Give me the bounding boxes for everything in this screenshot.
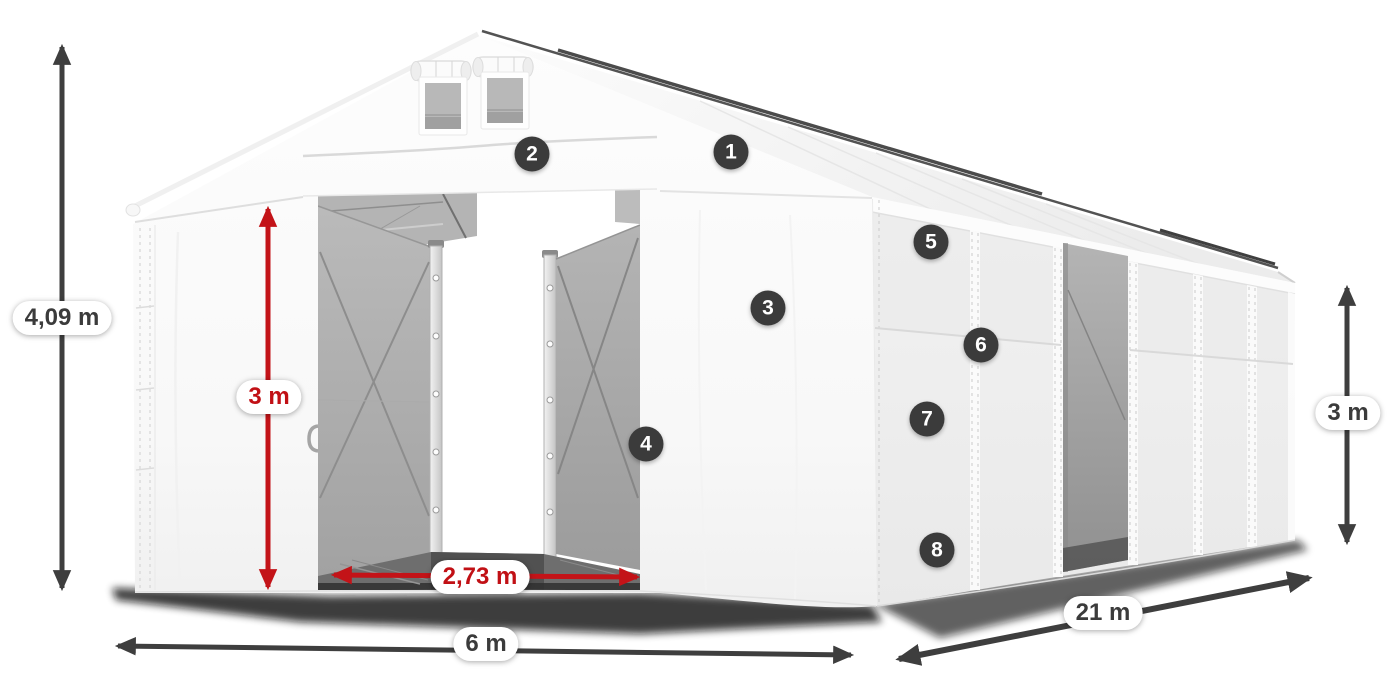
vent-window-right xyxy=(473,57,533,129)
tent-illustration xyxy=(0,0,1400,700)
door-pole-left xyxy=(428,240,444,566)
callout-1-badge: 1 xyxy=(714,135,749,170)
callout-6-badge: 6 xyxy=(964,328,999,363)
length-label: 21 m xyxy=(1064,596,1143,630)
callout-4-badge: 4 xyxy=(629,427,664,462)
callout-5-badge: 5 xyxy=(914,225,949,260)
callout-2-badge: 2 xyxy=(515,137,550,172)
front-opening-interior xyxy=(316,188,642,592)
tent-dimension-diagram: 4,09 m 3 m 2,73 m 6 m 21 m 3 m 1 2 3 4 5… xyxy=(0,0,1400,700)
side-height-label: 3 m xyxy=(1315,396,1380,430)
door-pole-right xyxy=(542,250,558,560)
total-height-label: 4,09 m xyxy=(13,301,112,335)
side-entrance-opening xyxy=(1063,243,1128,572)
callout-7-badge: 7 xyxy=(910,402,945,437)
vent-window-left xyxy=(411,61,471,135)
door-leaf-left xyxy=(318,206,431,578)
door-leaf-right xyxy=(556,225,640,570)
callout-3-badge: 3 xyxy=(751,291,786,326)
front-width-label: 6 m xyxy=(453,627,518,661)
door-height-label: 3 m xyxy=(236,380,301,414)
door-width-label: 2,73 m xyxy=(431,560,530,594)
callout-8-badge: 8 xyxy=(920,533,955,568)
